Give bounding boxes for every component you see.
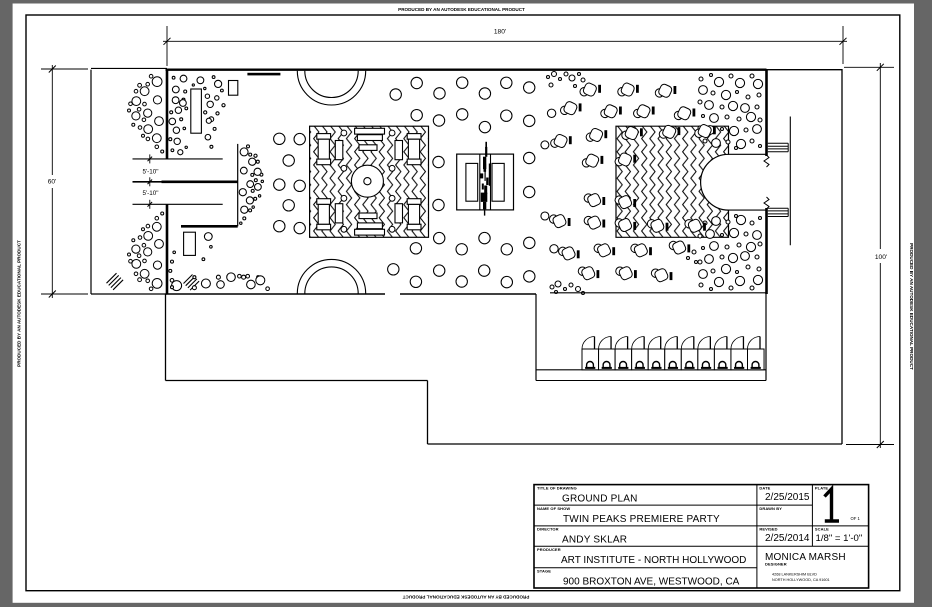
svg-text:900 BROXTON AVE, WESTWOOD, CA: 900 BROXTON AVE, WESTWOOD, CA [563, 576, 740, 587]
svg-text:5'-10": 5'-10" [142, 169, 158, 176]
svg-text:PRODUCED BY AN AUTODESK EDUCAT: PRODUCED BY AN AUTODESK EDUCATIONAL PROD… [17, 240, 22, 367]
svg-text:PLATE: PLATE [815, 486, 829, 491]
svg-text:NORTH HOLLYWOOD, CA 91601: NORTH HOLLYWOOD, CA 91601 [772, 578, 830, 582]
svg-text:MONICA MARSH: MONICA MARSH [765, 552, 846, 563]
svg-text:180': 180' [494, 29, 506, 36]
svg-text:TWIN PEAKS PREMIERE PARTY: TWIN PEAKS PREMIERE PARTY [563, 514, 720, 525]
svg-text:PRODUCED BY AN AUTODESK EDUCAT: PRODUCED BY AN AUTODESK EDUCATIONAL PROD… [398, 7, 525, 12]
svg-text:SCALE: SCALE [815, 526, 829, 531]
svg-text:PRODUCED BY AN AUTODESK EDUCAT: PRODUCED BY AN AUTODESK EDUCATIONAL PROD… [402, 595, 529, 600]
svg-text:REVISED: REVISED [759, 526, 777, 531]
svg-text:GROUND PLAN: GROUND PLAN [562, 494, 638, 505]
svg-text:TITLE OF DRAWING: TITLE OF DRAWING [537, 486, 577, 491]
svg-text:PRODUCED BY AN AUTODESK EDUCAT: PRODUCED BY AN AUTODESK EDUCATIONAL PROD… [909, 243, 914, 370]
svg-text:2/25/2015: 2/25/2015 [765, 492, 810, 503]
svg-text:ART INSTITUTE - NORTH HOLLYWOO: ART INSTITUTE - NORTH HOLLYWOOD [561, 555, 746, 566]
svg-text:60': 60' [48, 179, 57, 186]
svg-text:STAGE: STAGE [537, 568, 551, 573]
svg-text:NAME OF SHOW: NAME OF SHOW [537, 506, 570, 511]
svg-text:4268 LANKERSHIM BLVD: 4268 LANKERSHIM BLVD [772, 572, 817, 576]
svg-text:DATE: DATE [759, 486, 770, 491]
svg-text:2/25/2014: 2/25/2014 [765, 533, 810, 544]
svg-text:100': 100' [875, 254, 887, 261]
svg-text:1/8" = 1'-0": 1/8" = 1'-0" [816, 533, 863, 544]
svg-text:DIRECTOR: DIRECTOR [537, 526, 559, 531]
svg-text:DRAWN BY: DRAWN BY [759, 506, 782, 511]
svg-text:OF 1: OF 1 [851, 516, 861, 521]
svg-text:5'-10": 5'-10" [142, 190, 158, 197]
svg-text:ANDY SKLAR: ANDY SKLAR [562, 534, 627, 545]
svg-text:PRODUCER: PRODUCER [537, 547, 561, 552]
